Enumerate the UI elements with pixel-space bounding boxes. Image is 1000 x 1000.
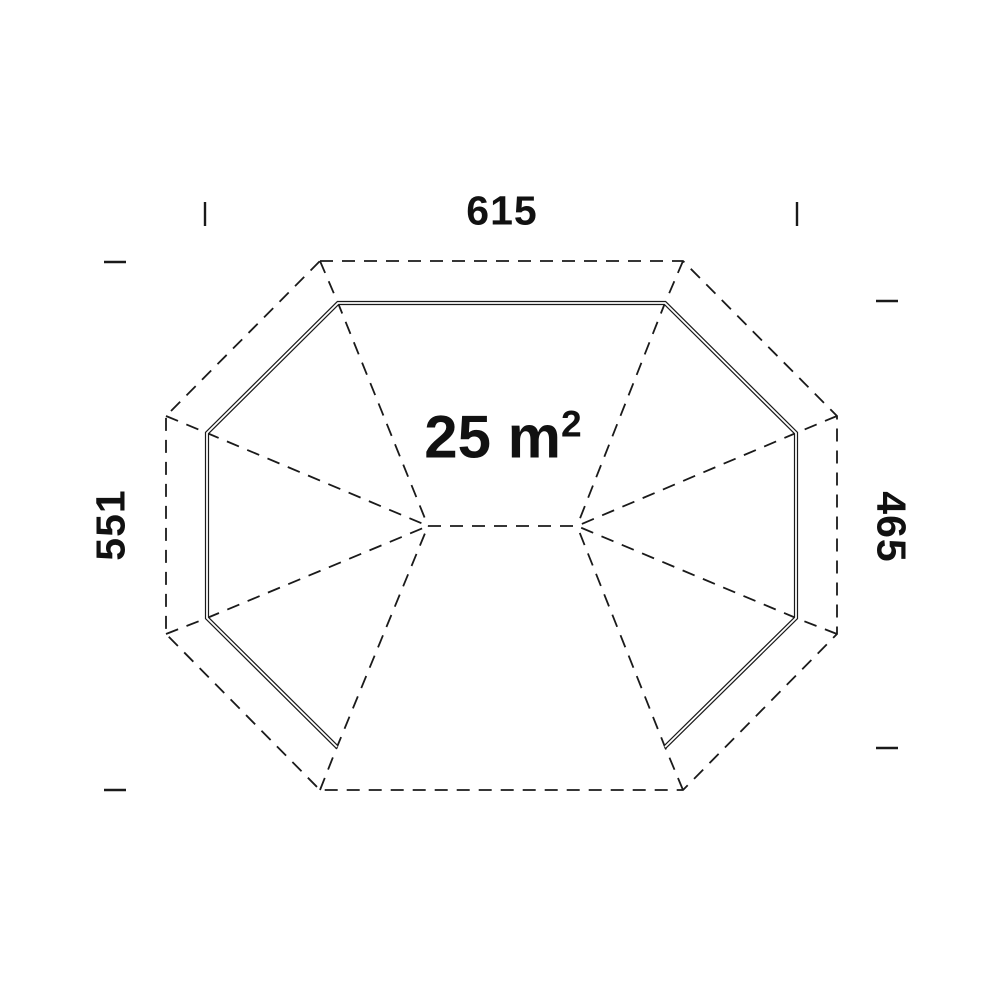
area-value: 25 m bbox=[424, 404, 561, 471]
wall-outline-gap bbox=[207, 303, 796, 747]
hip-line-4 bbox=[320, 526, 428, 790]
area-exponent: 2 bbox=[561, 403, 582, 445]
dimension-top-width-label: 615 bbox=[466, 188, 537, 235]
hip-line-5 bbox=[577, 261, 683, 526]
dimension-right-wall-span-label: 465 bbox=[868, 491, 915, 562]
hip-line-8 bbox=[577, 526, 683, 790]
area-label: 25 m2 bbox=[424, 403, 581, 472]
floor-plan-page: 615 551 465 25 m2 bbox=[0, 0, 1000, 1000]
hip-line-1 bbox=[320, 261, 428, 526]
dimension-left-depth-label: 551 bbox=[88, 489, 135, 560]
floor-plan-drawing bbox=[0, 0, 1000, 1000]
wall-outline-outer bbox=[207, 303, 796, 747]
